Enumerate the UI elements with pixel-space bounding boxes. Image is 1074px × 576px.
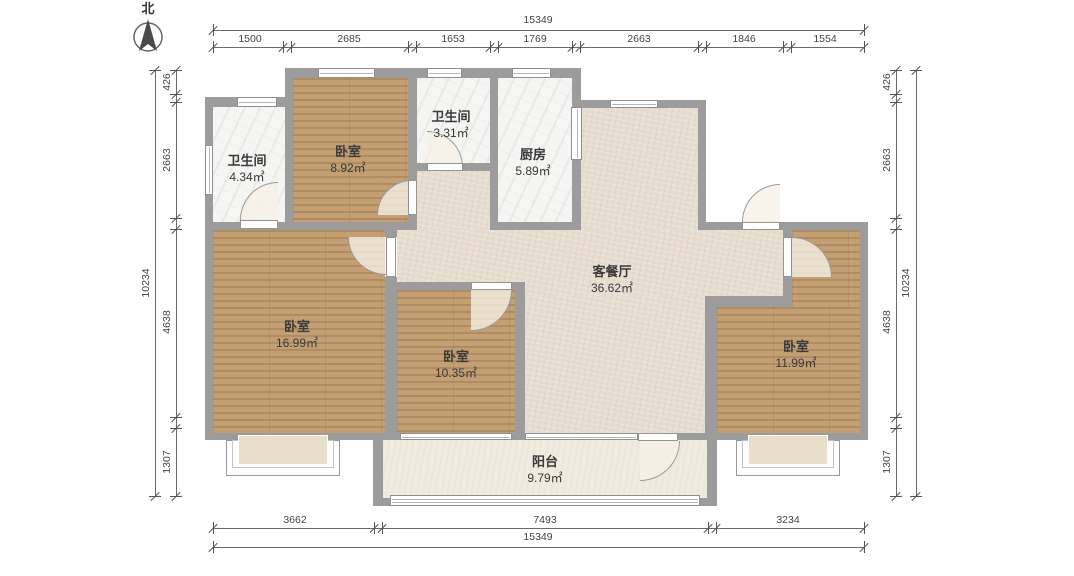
dim-bottom-seg: 3662 xyxy=(265,514,325,526)
dim-right-seg: 2663 xyxy=(881,138,893,182)
dim-left-total: 10234 xyxy=(140,261,152,305)
wall xyxy=(705,296,792,307)
window-balcony-front xyxy=(390,495,700,506)
wall xyxy=(515,290,525,433)
dim-left-seg: 426 xyxy=(161,60,173,104)
dim-left-seg: 4638 xyxy=(161,300,173,344)
bay-window-left-sill xyxy=(238,435,328,465)
room-label-bedroom-left: 卧室 16.99㎡ xyxy=(257,318,337,352)
wall xyxy=(698,222,868,230)
wall xyxy=(385,230,397,237)
north-label: 北 xyxy=(126,2,170,16)
bay-window-right-sill xyxy=(748,435,828,465)
dim-right-seg: 426 xyxy=(881,60,893,104)
dim-bottom-seg: 3234 xyxy=(758,514,818,526)
dim-top-total: 15349 xyxy=(508,14,568,26)
room-label-bedroom-top: 卧室 8.92㎡ xyxy=(308,143,388,177)
door-leaf-bath-mid xyxy=(427,163,463,171)
door-leaf-bedroom-top xyxy=(408,180,417,215)
window-living-balcony xyxy=(525,433,638,440)
north-arrow-icon xyxy=(128,16,168,56)
door-leaf-balcony xyxy=(638,433,678,441)
room-label-bath-mid: 卫生间 3.31㎡ xyxy=(411,108,491,142)
wall xyxy=(490,222,581,230)
room-area: 3.31㎡ xyxy=(411,125,491,142)
window-kitchen xyxy=(512,68,551,78)
wall xyxy=(783,230,792,237)
wall xyxy=(408,215,417,230)
window-bedroom-mid-balcony xyxy=(400,433,512,440)
north-indicator: 北 xyxy=(126,2,170,56)
window-bath-left-top xyxy=(237,97,277,107)
room-area: 10.35㎡ xyxy=(416,365,496,382)
room-name: 阳台 xyxy=(505,453,585,470)
door-leaf-bath-left xyxy=(240,220,278,229)
wall xyxy=(373,433,383,506)
dim-top-seg: 2685 xyxy=(319,33,379,45)
room-area: 4.34㎡ xyxy=(207,169,287,186)
wall xyxy=(385,277,397,440)
window-bedroom-top xyxy=(318,68,375,78)
dimension-line xyxy=(916,70,917,496)
wall xyxy=(463,163,490,171)
door-leaf-entry xyxy=(742,222,780,230)
room-name: 卧室 xyxy=(257,318,337,335)
dim-bottom-seg: 7493 xyxy=(515,514,575,526)
door-leaf-bedroom-right xyxy=(783,237,792,277)
room-living-dining xyxy=(581,108,698,230)
room-name: 卧室 xyxy=(308,143,388,160)
wall xyxy=(411,163,427,171)
window-living-top xyxy=(610,100,658,108)
dim-top-seg: 1554 xyxy=(795,33,855,45)
room-living-dining xyxy=(525,296,705,433)
wall xyxy=(512,282,525,290)
dim-top-seg: 1846 xyxy=(714,33,774,45)
dimension-line xyxy=(176,70,177,496)
dim-bottom-total: 15349 xyxy=(508,531,568,543)
dimension-line xyxy=(155,70,156,496)
room-area: 5.89㎡ xyxy=(493,163,573,180)
wall xyxy=(860,230,868,440)
room-label-bedroom-right: 卧室 11.99㎡ xyxy=(756,338,836,372)
wall xyxy=(705,296,717,433)
dimension-line xyxy=(213,547,864,548)
room-area: 11.99㎡ xyxy=(756,355,836,372)
dim-left-seg: 1307 xyxy=(161,440,173,484)
dim-top-seg: 1653 xyxy=(423,33,483,45)
room-label-kitchen: 厨房 5.89㎡ xyxy=(493,146,573,180)
floor-plan: 北 卫生间 4.34㎡ 卧室 8.92㎡ 卫生间 3.31㎡ 厨房 5.89㎡ … xyxy=(0,0,1074,576)
room-area: 8.92㎡ xyxy=(308,160,388,177)
room-area: 9.79㎡ xyxy=(505,470,585,487)
dim-top-seg: 1769 xyxy=(505,33,565,45)
wall xyxy=(707,433,717,506)
room-area: 36.62㎡ xyxy=(572,280,652,297)
dim-right-seg: 4638 xyxy=(881,300,893,344)
wall xyxy=(397,282,471,290)
dimension-line xyxy=(213,30,864,31)
wall xyxy=(285,68,293,230)
room-name: 厨房 xyxy=(493,146,573,163)
room-label-bedroom-mid: 卧室 10.35㎡ xyxy=(416,348,496,382)
dim-left-seg: 2663 xyxy=(161,138,173,182)
door-leaf-bedroom-mid xyxy=(471,282,512,290)
wall xyxy=(205,222,417,230)
room-living-dining xyxy=(417,171,490,230)
room-area: 16.99㎡ xyxy=(257,335,337,352)
dim-right-total: 10234 xyxy=(900,261,912,305)
room-label-balcony: 阳台 9.79㎡ xyxy=(505,453,585,487)
dimension-line xyxy=(213,528,864,529)
room-name: 客餐厅 xyxy=(572,263,652,280)
door-leaf-bedroom-left xyxy=(386,237,396,277)
wall xyxy=(698,108,706,230)
room-name: 卫生间 xyxy=(411,108,491,125)
dimension-line xyxy=(896,70,897,496)
dim-top-seg: 2663 xyxy=(609,33,669,45)
dim-top-seg: 1500 xyxy=(220,33,280,45)
dim-right-seg: 1307 xyxy=(881,440,893,484)
room-label-living: 客餐厅 36.62㎡ xyxy=(572,263,652,297)
door-swing-entry xyxy=(742,184,780,222)
room-name: 卫生间 xyxy=(207,152,287,169)
room-name: 卧室 xyxy=(416,348,496,365)
room-label-bath-left: 卫生间 4.34㎡ xyxy=(207,152,287,186)
window-bath-mid xyxy=(427,68,462,78)
dimension-line xyxy=(213,47,864,48)
room-name: 卧室 xyxy=(756,338,836,355)
